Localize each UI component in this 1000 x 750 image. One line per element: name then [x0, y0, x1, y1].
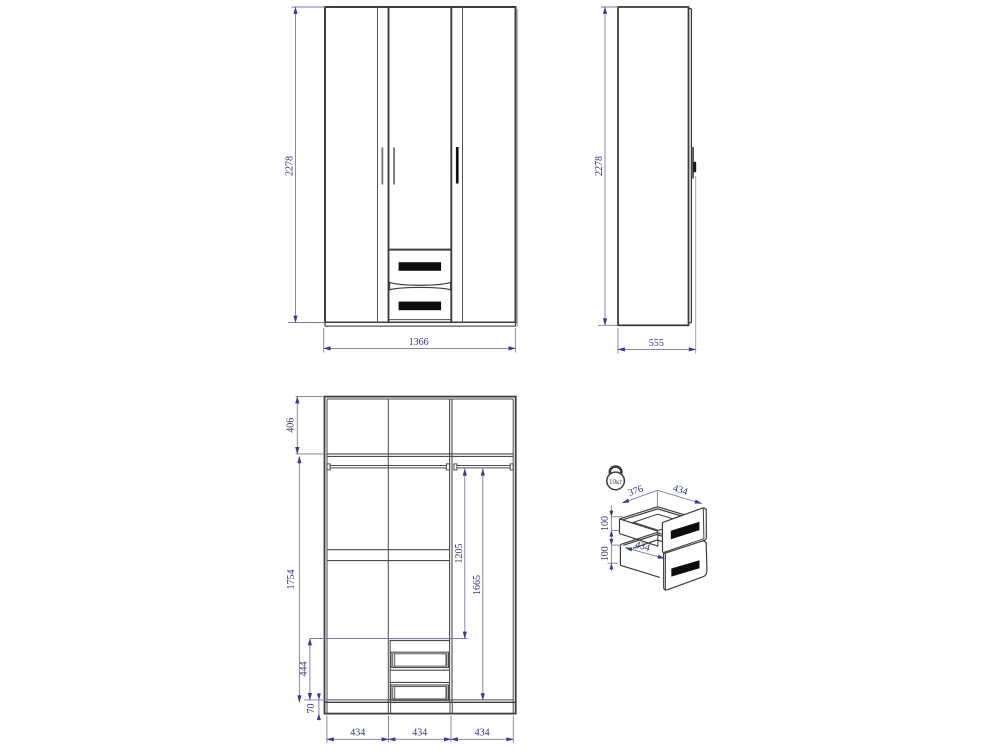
svg-text:100: 100 [600, 516, 611, 531]
svg-text:434: 434 [634, 540, 651, 555]
svg-text:434: 434 [475, 727, 490, 738]
svg-text:434: 434 [350, 727, 365, 738]
svg-text:1754: 1754 [286, 570, 297, 590]
svg-text:70: 70 [306, 704, 317, 714]
svg-text:406: 406 [286, 418, 297, 433]
svg-text:10кг: 10кг [609, 478, 622, 486]
svg-text:555: 555 [649, 338, 664, 349]
svg-text:434: 434 [412, 727, 427, 738]
svg-text:376: 376 [627, 484, 645, 499]
svg-text:2278: 2278 [594, 156, 605, 176]
svg-text:444: 444 [299, 662, 310, 677]
svg-text:1665: 1665 [472, 575, 483, 595]
svg-text:1205: 1205 [454, 544, 465, 564]
svg-text:100: 100 [600, 546, 611, 561]
svg-text:1366: 1366 [409, 337, 429, 348]
svg-text:2278: 2278 [285, 156, 296, 176]
